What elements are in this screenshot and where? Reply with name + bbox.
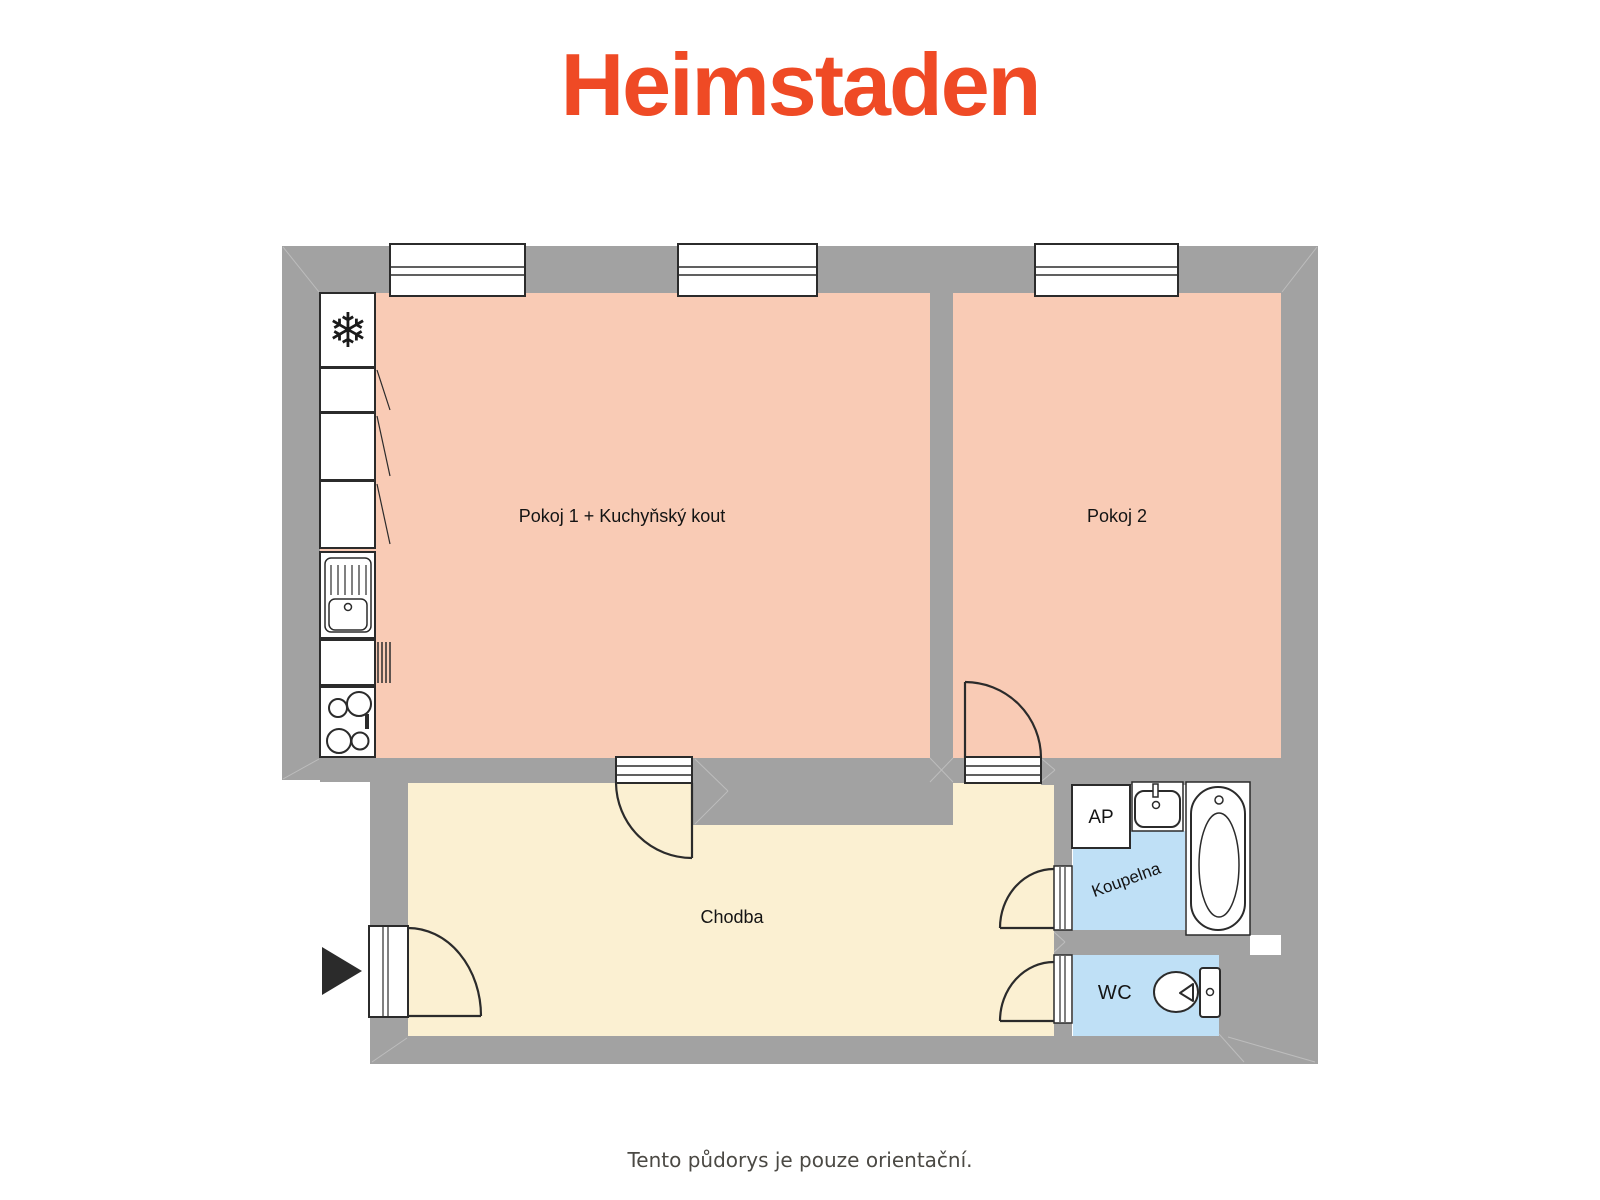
kitchen-cabinet-icon <box>320 640 375 685</box>
refrigerator-icon: ❄ <box>320 293 375 367</box>
floor-plan: ❄ <box>0 0 1600 1200</box>
door-frame-wc <box>1054 955 1072 1023</box>
room-label-pokoj1: Pokoj 1 + Kuchyňský kout <box>519 506 726 526</box>
wall-segment <box>320 758 408 782</box>
stove-knob <box>365 714 369 729</box>
washing-machine-space: AP <box>1072 785 1130 848</box>
ap-label: AP <box>1088 807 1113 828</box>
wall-thick-segment <box>692 758 953 825</box>
kitchen-cabinet-icon <box>320 368 375 412</box>
wall-between-rooms <box>930 293 953 758</box>
entry-arrow-icon <box>322 947 362 995</box>
door-frame-koupelna <box>1054 866 1072 930</box>
wall-wing-left-upper <box>370 780 408 926</box>
wall-segment <box>953 758 965 783</box>
entry-door-frame <box>369 926 408 1017</box>
kitchen-cabinet-icon <box>320 481 375 548</box>
room-label-chodba: Chodba <box>700 907 764 927</box>
window-icon <box>390 244 525 296</box>
wall-right <box>1281 246 1318 1064</box>
wall-bottom <box>370 1036 1318 1064</box>
door-threshold <box>616 757 692 783</box>
toilet-icon <box>1154 968 1220 1017</box>
wall-right-of-wc <box>1219 955 1281 1036</box>
wall-bath-left-upper <box>1054 782 1072 866</box>
wall-segment <box>408 758 616 783</box>
wall-left <box>282 246 320 780</box>
door-threshold <box>965 757 1041 783</box>
room-label-wc: WC <box>1098 982 1132 1004</box>
wall-right-of-bathtub <box>1250 782 1281 935</box>
kitchen-cabinet-icon <box>320 413 375 480</box>
wall-bath-left-lower <box>1054 1023 1072 1037</box>
disclaimer-caption: Tento půdorys je pouze orientační. <box>0 1148 1600 1172</box>
wall-segment <box>1041 758 1281 785</box>
snowflake-icon: ❄ <box>328 303 368 359</box>
room-label-pokoj2: Pokoj 2 <box>1087 506 1147 526</box>
room-floors <box>320 293 1281 1036</box>
window-icon <box>1035 244 1178 296</box>
washbasin-icon <box>1132 782 1183 831</box>
window-icon <box>678 244 817 296</box>
bathtub-icon <box>1186 782 1250 935</box>
stove-icon <box>320 687 375 757</box>
kitchen-sink-icon <box>320 552 375 638</box>
